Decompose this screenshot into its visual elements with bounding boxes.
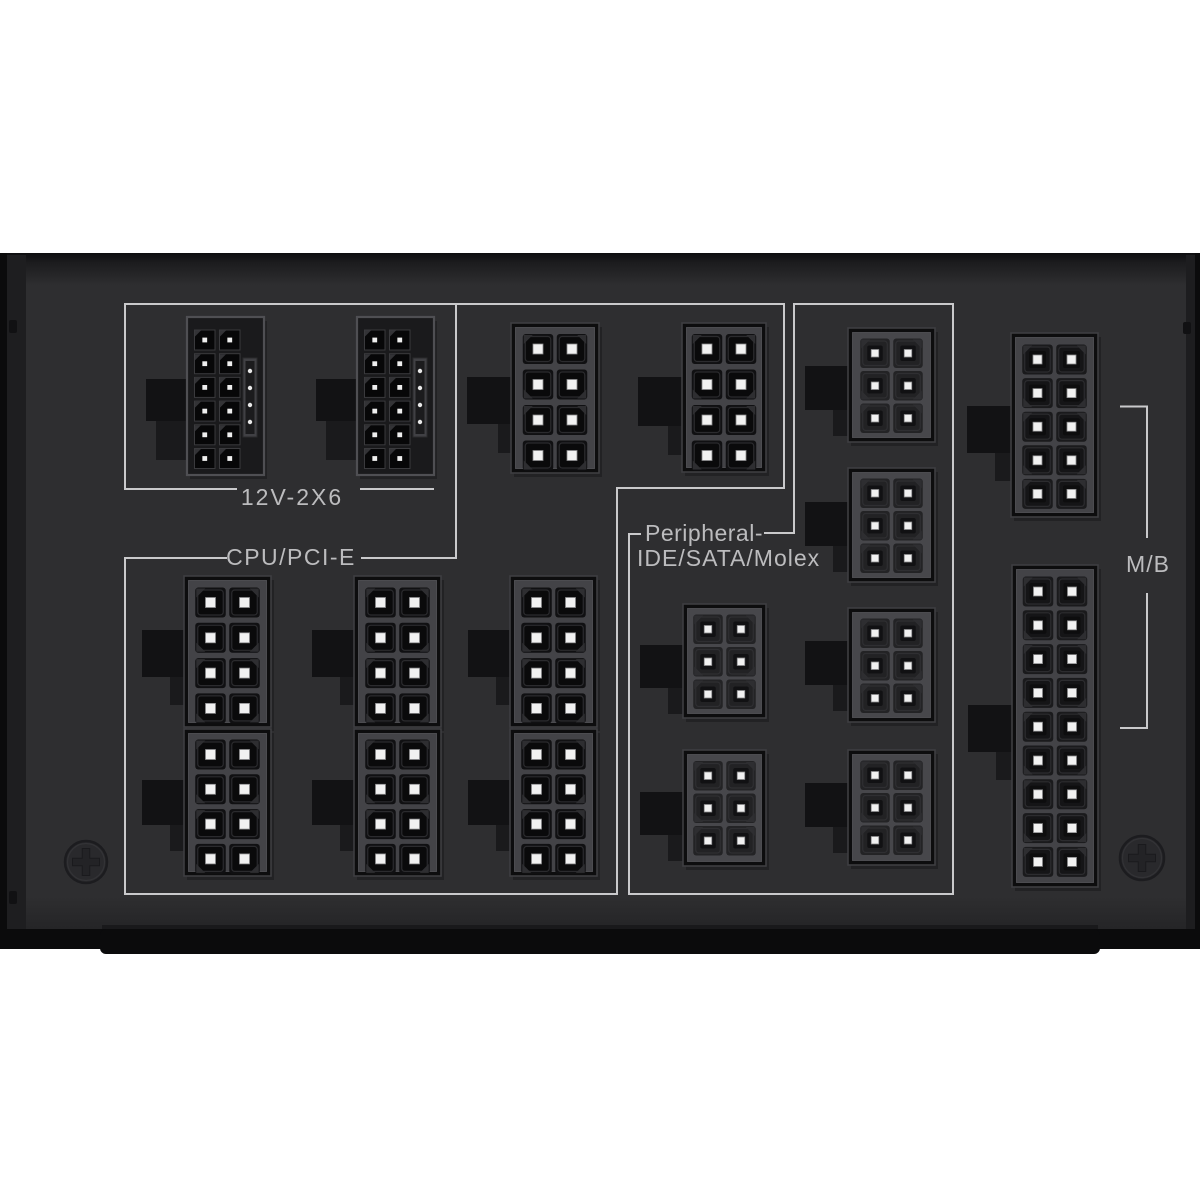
svg-text:CPU/PCI-E: CPU/PCI-E (226, 544, 356, 570)
svg-text:M/B: M/B (1126, 551, 1170, 577)
svg-text:12V-2X6: 12V-2X6 (241, 484, 343, 510)
svg-text:IDE/SATA/Molex: IDE/SATA/Molex (637, 545, 820, 571)
svg-text:Peripheral-: Peripheral- (645, 520, 763, 546)
